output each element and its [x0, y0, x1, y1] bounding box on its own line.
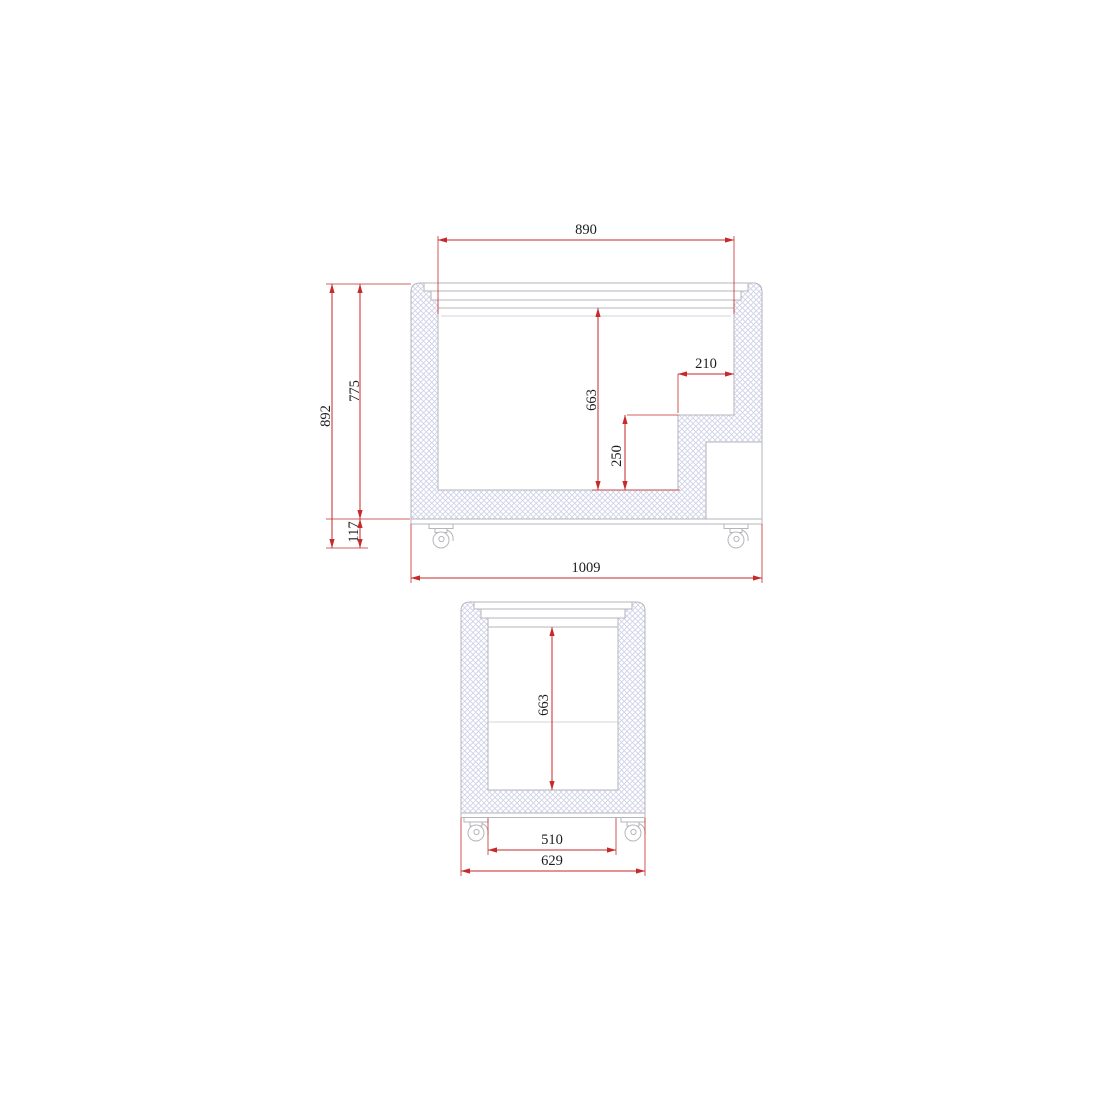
caster	[429, 524, 453, 548]
caster	[724, 524, 748, 548]
base-rail	[461, 813, 645, 818]
compressor-niche	[706, 442, 762, 519]
dim-label-opening-width: 890	[575, 222, 597, 238]
base-rail	[411, 519, 762, 524]
dim-label-overall-height: 892	[318, 405, 334, 427]
caster	[621, 818, 645, 842]
inner-cavity	[474, 602, 632, 790]
dim-label-base-height: 117	[346, 521, 362, 542]
dim-label-inner-height: 663	[536, 694, 552, 716]
dim-label-step-height: 250	[609, 445, 625, 467]
caster	[464, 818, 488, 842]
dim-label-inner-height: 663	[584, 389, 600, 411]
end-section-view: 663 510 629	[461, 602, 645, 876]
side-section-view: 890 892 775 117 663 250 210 1009	[318, 222, 762, 583]
dim-label-bottom-inner-width: 510	[541, 832, 563, 848]
dim-label-overall-length: 1009	[572, 560, 601, 576]
dim-label-overall-width: 629	[541, 853, 563, 869]
dim-label-body-height: 775	[347, 380, 363, 402]
dim-label-step-width: 210	[695, 356, 717, 372]
technical-drawing: 890 892 775 117 663 250 210 1009	[0, 0, 1100, 1100]
drawing-page: 890 892 775 117 663 250 210 1009	[0, 0, 1100, 1100]
